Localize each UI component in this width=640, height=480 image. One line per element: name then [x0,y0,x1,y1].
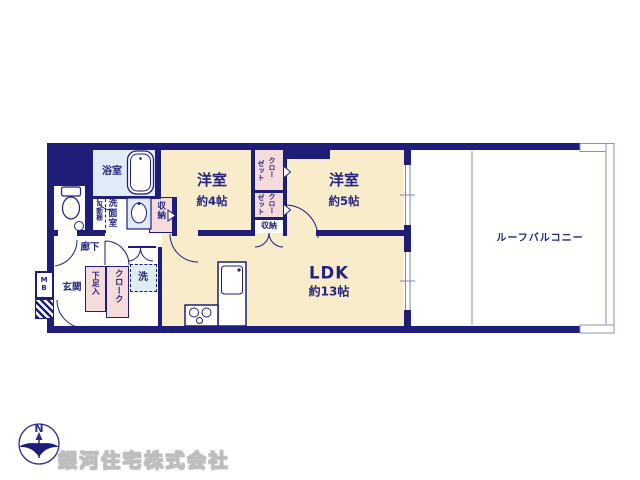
balcony-railing [580,144,614,334]
shoe-box-label: 下足入 [91,271,100,295]
company-watermark: 銀河住宅株式会社 [58,446,230,473]
bathtub-icon [128,151,154,194]
window-icon [400,165,415,225]
floorplan-page: N 浴室 洗面室 可動棚 収納 洋室 約4帖 クロー ゼット クロー ゼット 収… [0,0,640,480]
cloak-label: クローク [113,269,123,303]
meter-box-label: MB [40,276,48,292]
hall-storage-label: 収納 [155,201,165,220]
western5-size: 約5帖 [328,195,359,207]
ldk-size: 約13帖 [309,286,350,299]
roof-balcony-label: ルーフバルコニー [496,234,583,245]
ldk-label: LDK [309,264,349,281]
closet-lower-label-col1: クロー [268,193,276,214]
washroom-label: 洗面室 [106,198,116,228]
corridor-label: 廊下 [80,243,99,253]
western4-size: 約4帖 [196,195,227,207]
compass-icon: N [19,422,59,464]
closet-upper-label-col1: クロー [268,157,276,178]
stove-icon [185,305,218,326]
movable-shelf-label: 可動棚 [94,201,101,221]
window-icon [400,252,415,310]
washbasin-icon [127,198,151,229]
bathroom-label: 浴室 [102,167,122,178]
closet-upper-label-col2: ゼット [257,160,265,181]
closet-storage-label: 収納 [261,222,277,230]
laundry-label: 洗 [138,273,148,284]
kitchen-sink-icon [218,262,246,326]
toilet-icon [62,187,84,231]
bird-silhouette [19,443,59,457]
entrance-label: 玄関 [62,283,81,293]
western5-label: 洋室 [329,173,359,189]
closet-lower-label-col2: ゼット [257,194,265,215]
western4-label: 洋室 [197,173,227,189]
